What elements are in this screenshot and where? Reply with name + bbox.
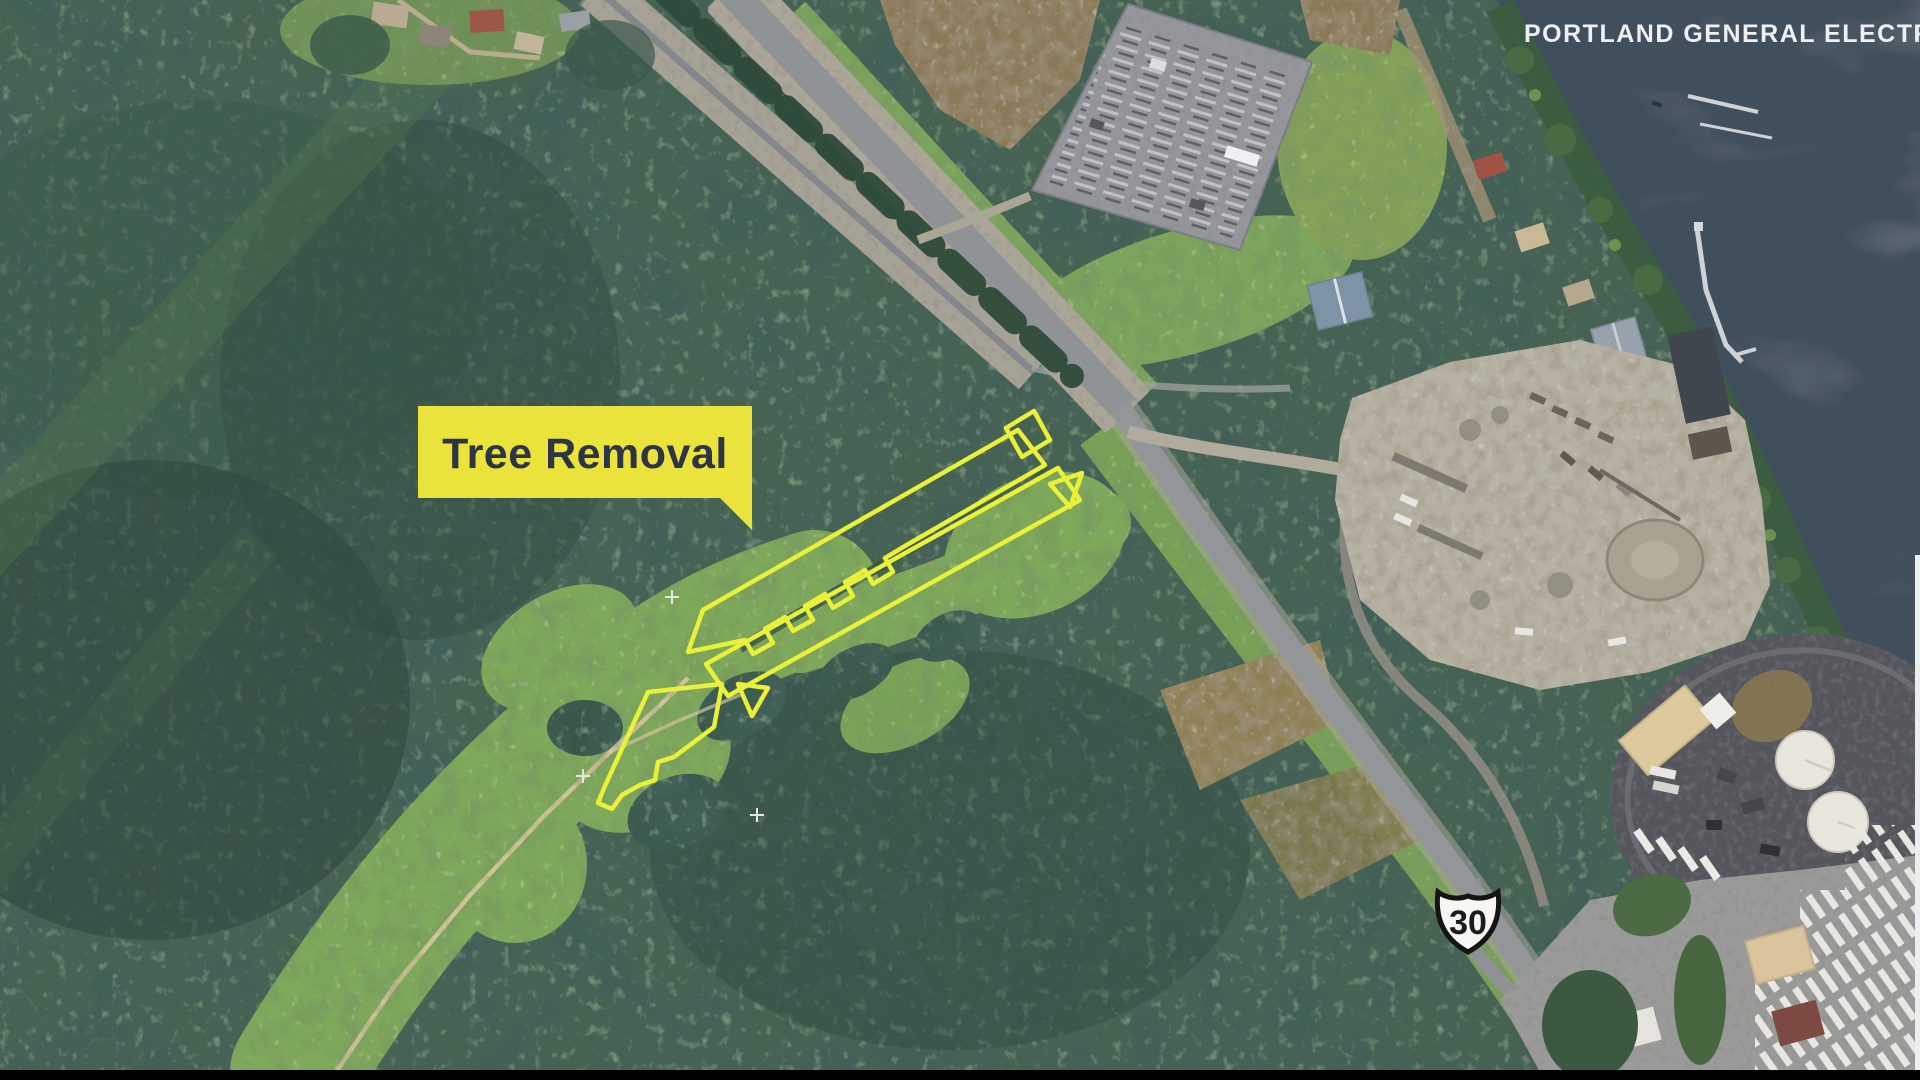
right-edge-stripe	[1915, 555, 1920, 1070]
letterbox-bar	[0, 1070, 1920, 1080]
shield-route-number: 30	[1449, 904, 1487, 942]
callout-label: Tree Removal	[442, 430, 728, 478]
credit-text: PORTLAND GENERAL ELECTRIC	[1524, 20, 1920, 48]
aerial-basemap: Tree Removal 30 PORTLAND GENERAL ELECTRI…	[0, 0, 1920, 1080]
red-roof-house	[469, 9, 504, 33]
news-graphic: Tree Removal 30 PORTLAND GENERAL ELECTRI…	[0, 0, 1920, 1080]
